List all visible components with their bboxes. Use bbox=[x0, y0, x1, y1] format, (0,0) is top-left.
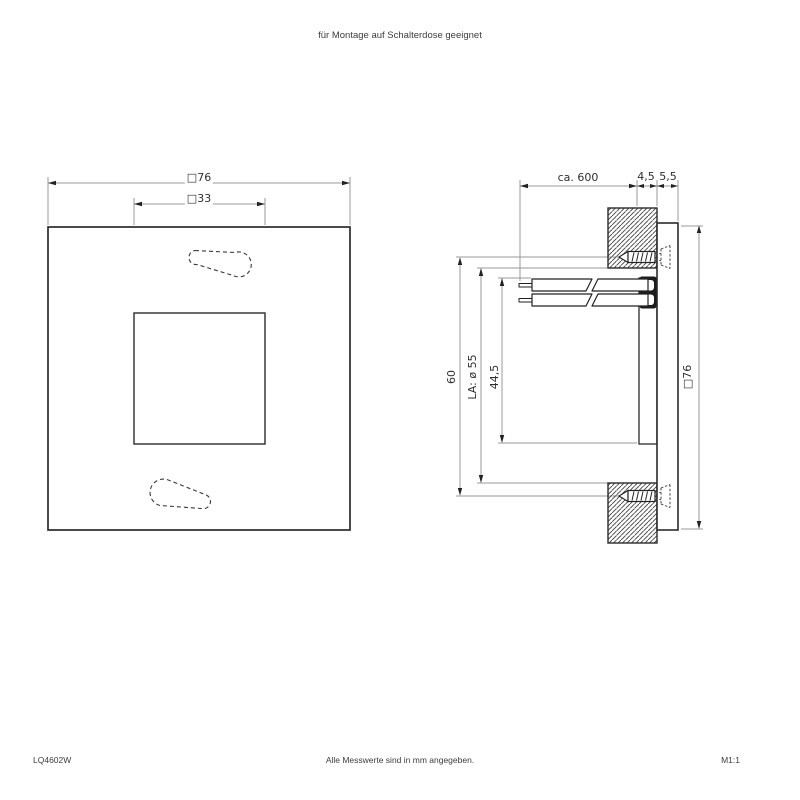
front-dim-outer-label: □76 bbox=[185, 172, 213, 184]
panel-thickness-label: 5,5 bbox=[657, 171, 679, 183]
side-view bbox=[456, 180, 703, 543]
panel-size-label: □76 bbox=[682, 363, 694, 391]
cable-length-label: ca. 600 bbox=[556, 172, 601, 184]
units-note: Alle Messwerte sind in mm angegeben. bbox=[0, 755, 800, 765]
recess-depth-label: 4,5 bbox=[635, 171, 657, 183]
cover-panel bbox=[657, 223, 678, 530]
drawing-scale: M1:1 bbox=[721, 755, 740, 765]
screw-spacing-label: 60 bbox=[446, 368, 458, 386]
datasheet-page: für Montage auf Schalterdose geeignet □7… bbox=[0, 0, 800, 800]
connection-cables bbox=[519, 279, 648, 306]
front-view bbox=[48, 177, 350, 530]
front-dim-inner-label: □33 bbox=[185, 193, 213, 205]
mounting-note: für Montage auf Schalterdose geeignet bbox=[0, 30, 800, 41]
body-size-label: 44,5 bbox=[489, 363, 501, 392]
cutout-label: LA: ø 55 bbox=[467, 352, 479, 401]
technical-drawing bbox=[0, 0, 800, 800]
light-window-outline bbox=[134, 313, 265, 444]
